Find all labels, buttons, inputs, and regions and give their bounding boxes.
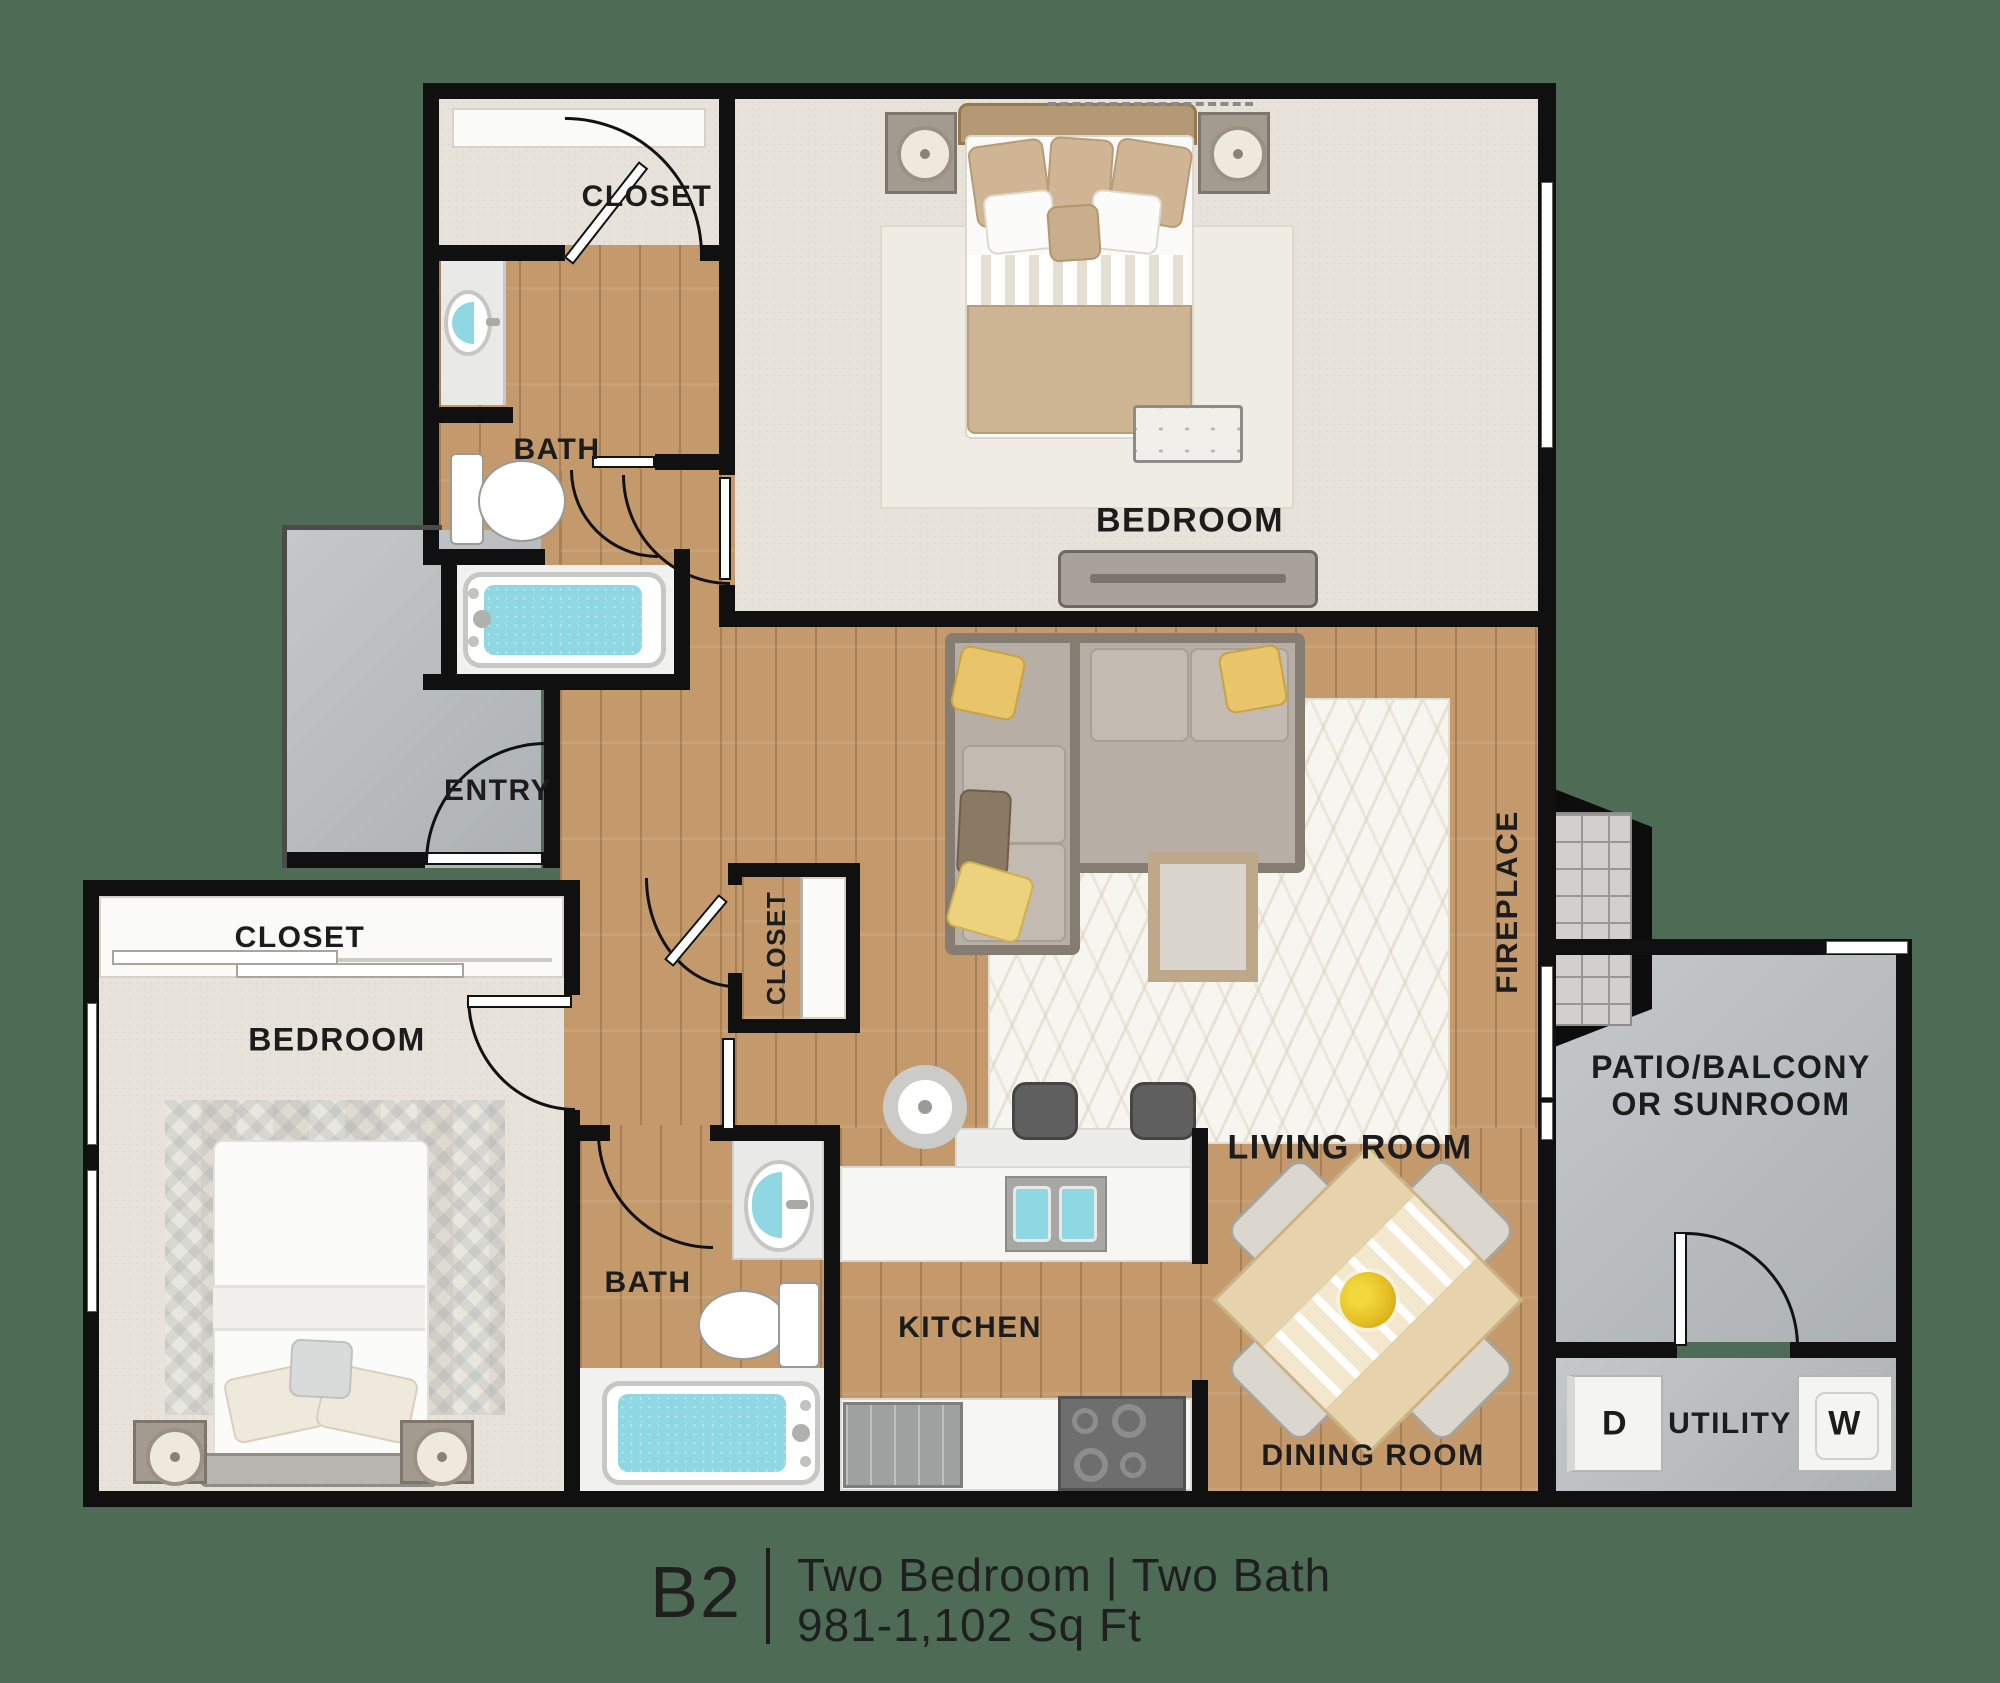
wall	[1192, 1380, 1208, 1491]
toilet-lower-tank	[778, 1282, 820, 1368]
tub-lower-water	[618, 1394, 786, 1472]
door-leaf	[467, 995, 572, 1008]
wall	[564, 1110, 580, 1507]
wall	[423, 674, 690, 690]
wall	[1192, 1128, 1208, 1264]
wall	[287, 852, 425, 868]
wall	[1556, 1342, 1677, 1358]
door-leaf	[722, 1038, 735, 1130]
window	[87, 1170, 97, 1312]
wall	[423, 549, 545, 565]
tub-top-knob1	[468, 588, 479, 599]
wall	[735, 611, 1538, 627]
toilet-top-bowl	[478, 460, 566, 542]
tub-lower-faucet	[792, 1424, 810, 1442]
label-patio: PATIO/BALCONY OR SUNROOM	[1591, 1049, 1871, 1123]
lamp-left-b	[413, 1428, 471, 1486]
coffee-table	[1148, 852, 1258, 982]
wall	[83, 880, 580, 896]
wall	[423, 83, 1556, 99]
window	[1541, 966, 1553, 1098]
wall	[719, 585, 735, 627]
sofa-pillow-yellow1	[949, 644, 1027, 722]
wall	[564, 896, 580, 995]
door-leaf	[719, 477, 731, 580]
wall	[655, 454, 735, 470]
wall	[1896, 939, 1912, 1507]
door-leaf	[592, 456, 655, 468]
window	[1541, 1102, 1553, 1140]
tub-top-faucet	[473, 610, 491, 628]
label-bedroom-left: BEDROOM	[248, 1022, 426, 1059]
closet-hall-shelf	[800, 877, 846, 1019]
window	[87, 1003, 97, 1145]
wall	[1790, 1342, 1896, 1358]
unit-summary: Two Bedroom | Two Bath	[797, 1548, 1331, 1602]
label-dining: DINING ROOM	[1261, 1439, 1484, 1474]
wall	[83, 1491, 1912, 1507]
label-bedroom-top: BEDROOM	[1096, 501, 1284, 540]
wall	[728, 1019, 860, 1033]
wall	[423, 407, 513, 423]
label-entry: ENTRY	[444, 774, 552, 809]
kitchen-sink-basin1	[1013, 1186, 1051, 1242]
bar-stool1	[1012, 1082, 1078, 1140]
dining-flowers	[1340, 1272, 1396, 1328]
label-patio-line1: PATIO/BALCONY	[1591, 1049, 1871, 1086]
bed-bench	[1133, 405, 1243, 463]
label-bath-lower: BATH	[604, 1266, 691, 1301]
label-utility: UTILITY	[1668, 1407, 1792, 1442]
wall	[824, 1125, 840, 1491]
door-leaf	[1674, 1232, 1687, 1346]
lamp-left-a	[146, 1428, 204, 1486]
sofa-pillow-yellow2	[1217, 643, 1289, 715]
label-dryer: D	[1602, 1404, 1628, 1443]
bar-stool2	[1130, 1082, 1196, 1140]
wall	[441, 549, 457, 690]
bedroom-top-blinds	[1048, 102, 1253, 106]
label-washer: W	[1828, 1404, 1862, 1443]
bed-left-fold	[213, 1285, 425, 1331]
label-closet-left: CLOSET	[235, 921, 366, 956]
floor-plan: CLOSET BATH BEDROOM ENTRY CLOSET CLOSET …	[0, 0, 2000, 1683]
caption-divider	[766, 1548, 770, 1644]
tub-lower-knob2	[800, 1456, 811, 1467]
entry-edge	[282, 525, 287, 868]
wall	[728, 863, 860, 877]
lamp-top-right	[1210, 126, 1266, 182]
label-closet-hall: CLOSET	[762, 891, 792, 1005]
stove-burner2	[1112, 1404, 1146, 1438]
label-fireplace: FIREPLACE	[1491, 810, 1526, 994]
bed-top-pillow6	[1046, 203, 1102, 262]
tub-lower-knob1	[800, 1400, 811, 1411]
wall	[719, 99, 735, 475]
lamp-top-left	[897, 126, 953, 182]
kitchen-sink-basin2	[1059, 1186, 1097, 1242]
window	[1826, 941, 1908, 954]
bed-left-pillow3	[289, 1338, 354, 1399]
dresser-top-handle	[1090, 574, 1286, 583]
toilet-lower-bowl	[698, 1290, 788, 1360]
label-living: LIVING ROOM	[1227, 1128, 1472, 1167]
fireplace-tiles	[1552, 812, 1632, 1026]
window	[1541, 182, 1553, 448]
wall	[846, 863, 860, 1033]
unit-sqft: 981-1,102 Sq Ft	[797, 1598, 1142, 1652]
closet-left-slider2	[236, 963, 464, 978]
pendant-light-center	[918, 1100, 932, 1114]
entry-edge	[282, 525, 442, 530]
stove-burner1	[1072, 1408, 1098, 1434]
sink-lower-faucet	[786, 1200, 808, 1209]
tub-top-water	[484, 585, 642, 655]
sofa-cushion1	[1090, 648, 1189, 742]
dishwasher	[843, 1402, 963, 1488]
stove-burner3	[1074, 1448, 1108, 1482]
wall	[423, 245, 565, 261]
tub-top-knob2	[468, 636, 479, 647]
stove-burner4	[1120, 1452, 1146, 1478]
wall	[423, 99, 439, 565]
sink-top-faucet	[486, 318, 500, 326]
label-patio-line2: OR SUNROOM	[1591, 1086, 1871, 1123]
label-bath-top: BATH	[513, 433, 600, 468]
label-closet-top: CLOSET	[582, 180, 713, 215]
label-kitchen: KITCHEN	[898, 1311, 1042, 1346]
unit-code: B2	[650, 1552, 742, 1634]
